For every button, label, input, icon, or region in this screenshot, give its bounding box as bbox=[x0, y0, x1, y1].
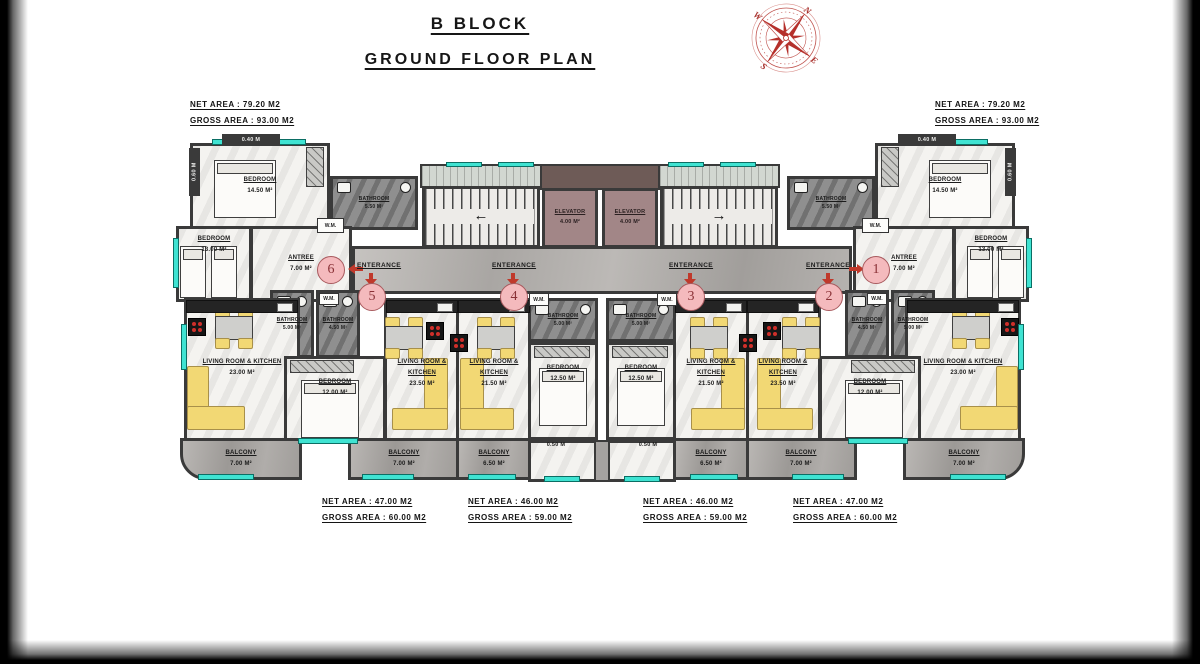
gross-area-label: GROSS AREA : 60.00 M2 bbox=[793, 510, 897, 526]
room-label: BALCONY7.00 M² bbox=[785, 448, 816, 470]
wardrobe bbox=[851, 360, 915, 373]
chair bbox=[952, 338, 967, 349]
room-label: LIVING ROOM & KITCHEN23.50 M² bbox=[387, 357, 457, 389]
wardrobe bbox=[612, 346, 668, 358]
room-label: BALCONY7.00 M² bbox=[225, 448, 256, 470]
sofa-section bbox=[187, 406, 245, 430]
window-glazing bbox=[690, 474, 738, 480]
dining-table bbox=[468, 316, 524, 360]
room-name: BATHROOM bbox=[898, 316, 929, 324]
compass-n: N bbox=[801, 4, 813, 17]
room-name: BEDROOM bbox=[975, 234, 1008, 245]
room-area: 12.00 M² bbox=[857, 390, 882, 396]
stair-direction-left: ← bbox=[428, 209, 534, 224]
room-area: 7.00 M² bbox=[893, 266, 915, 272]
room-area: 4.50 M² bbox=[329, 325, 347, 331]
washing-machine-label: W.M. bbox=[657, 293, 677, 306]
room-area: 14.50 M² bbox=[247, 188, 272, 194]
entrance-circle-2: 2 bbox=[815, 283, 843, 311]
washing-machine-label: W.M. bbox=[317, 218, 344, 233]
window-glazing bbox=[298, 438, 358, 444]
cooktop bbox=[763, 322, 781, 340]
room-area: 23.00 M² bbox=[229, 370, 254, 376]
room-name: BEDROOM bbox=[244, 175, 277, 186]
room-area: 5.00 M² bbox=[283, 325, 301, 331]
wardrobe bbox=[290, 360, 354, 373]
wall-dimension-label: 0.50 M bbox=[537, 442, 575, 448]
room-name: BATHROOM bbox=[548, 312, 579, 320]
room-area: 12.50 M² bbox=[550, 376, 575, 382]
room-name: BATHROOM bbox=[277, 316, 308, 324]
net-area-label: NET AREA : 46.00 M2 bbox=[468, 494, 572, 510]
room-name: BATHROOM bbox=[816, 195, 847, 203]
compass-rose-icon: N E S W bbox=[734, 0, 838, 82]
elevator-1: ELEVATOR4.00 M² bbox=[542, 188, 598, 248]
kitchen-counter bbox=[747, 300, 819, 313]
room-area: 5.00 M² bbox=[904, 325, 922, 331]
room-area: 14.50 M² bbox=[932, 188, 957, 194]
room-area: 5.00 M² bbox=[554, 321, 572, 327]
room-label: BATHROOM5.50 M² bbox=[816, 195, 847, 211]
entrance-circle-3: 3 bbox=[677, 283, 705, 311]
sofa-section bbox=[691, 408, 745, 430]
wall-dimension-label: 0.40 M bbox=[222, 134, 280, 145]
room-area: 6.50 M² bbox=[483, 461, 505, 467]
wall-dimension-label: 0.40 M bbox=[898, 134, 956, 145]
room-label: BALCONY7.00 M² bbox=[948, 448, 979, 470]
room-name: BEDROOM bbox=[929, 175, 962, 186]
wardrobe bbox=[306, 147, 324, 187]
washing-machine-label: W.M. bbox=[867, 293, 887, 305]
room-label: BEDROOM14.50 M² bbox=[929, 175, 962, 197]
washing-machine-label: W.M. bbox=[529, 293, 549, 306]
window-glazing bbox=[446, 162, 482, 167]
entrance-circle-5: 5 bbox=[358, 283, 386, 311]
sofa-section bbox=[960, 406, 1018, 430]
room-label: ANTREE7.00 M² bbox=[891, 253, 917, 275]
dining-table bbox=[376, 316, 432, 360]
window-glazing bbox=[198, 474, 254, 480]
window-glazing bbox=[720, 162, 756, 167]
corridor bbox=[352, 246, 852, 294]
gross-area-label: GROSS AREA : 59.00 M2 bbox=[468, 510, 572, 526]
arrow-stem bbox=[849, 267, 857, 271]
room-area: 13.00 M² bbox=[978, 247, 1003, 253]
room-area: 5.50 M² bbox=[822, 204, 840, 210]
room-label: BEDROOM12.50 M² bbox=[547, 363, 580, 385]
entrance-label: ENTERANCE bbox=[357, 262, 399, 269]
room-area: 23.50 M² bbox=[409, 381, 434, 387]
entrance-number: 1 bbox=[873, 262, 880, 278]
room-area: 7.00 M² bbox=[393, 461, 415, 467]
room-area: 4.50 M² bbox=[858, 325, 876, 331]
room-label: BATHROOM5.00 M² bbox=[898, 316, 929, 332]
chair bbox=[238, 338, 253, 349]
room-label: BATHROOM5.50 M² bbox=[359, 195, 390, 211]
window-glazing bbox=[544, 476, 580, 482]
room-area: 4.00 M² bbox=[560, 219, 580, 225]
room-name: LIVING ROOM & KITCHEN bbox=[459, 357, 529, 379]
room-area: 12.00 M² bbox=[322, 390, 347, 396]
room-name: BALCONY bbox=[478, 448, 509, 459]
room-area: 7.00 M² bbox=[230, 461, 252, 467]
room-name: BALCONY bbox=[785, 448, 816, 459]
window-glazing bbox=[498, 162, 534, 167]
room-name: ANTREE bbox=[891, 253, 917, 264]
summary-top-left: NET AREA : 79.20 M2 GROSS AREA : 93.00 M… bbox=[190, 97, 294, 129]
chair bbox=[975, 338, 990, 349]
room-name: BATHROOM bbox=[359, 195, 390, 203]
summary-unit4: NET AREA : 46.00 M2 GROSS AREA : 59.00 M… bbox=[468, 494, 572, 526]
window-glazing bbox=[181, 324, 187, 370]
room-name: LIVING ROOM & KITCHEN bbox=[748, 357, 818, 379]
room-area: 7.00 M² bbox=[290, 266, 312, 272]
sofa-section bbox=[392, 408, 448, 430]
room-area: 13.00 M² bbox=[201, 247, 226, 253]
room-label: BEDROOM12.00 M² bbox=[854, 377, 887, 399]
kitchen-counter bbox=[186, 300, 298, 313]
entrance-label: ENTERANCE bbox=[492, 262, 534, 269]
window-glazing bbox=[848, 438, 908, 444]
room-label: LIVING ROOM & KITCHEN23.50 M² bbox=[748, 357, 818, 389]
floor-title: GROUND FLOOR PLAN bbox=[355, 51, 605, 69]
window-glazing bbox=[362, 474, 414, 480]
room-label: BATHROOM5.00 M² bbox=[277, 316, 308, 332]
room-name: BALCONY bbox=[225, 448, 256, 459]
wall-dimension-label: 0.60 M bbox=[1005, 148, 1016, 196]
cooktop bbox=[188, 318, 206, 336]
room-name: ANTREE bbox=[288, 253, 314, 264]
room-name: LIVING ROOM & KITCHEN bbox=[387, 357, 457, 379]
stair-direction-right: → bbox=[666, 209, 772, 224]
room-label: ELEVATOR4.00 M² bbox=[555, 208, 586, 228]
cooktop bbox=[426, 322, 444, 340]
room-label: BATHROOM4.50 M² bbox=[852, 316, 883, 332]
room-area: 21.50 M² bbox=[481, 381, 506, 387]
room-name: ELEVATOR bbox=[615, 208, 646, 218]
room-label: LIVING ROOM & KITCHEN21.50 M² bbox=[459, 357, 529, 389]
entrance-label: ENTERANCE bbox=[806, 262, 848, 269]
frame-edge-right bbox=[1172, 0, 1200, 664]
elevator-shaft-wall bbox=[540, 164, 660, 190]
washing-machine-label: W.M. bbox=[862, 218, 889, 233]
window-glazing bbox=[173, 238, 179, 288]
summary-unit2: NET AREA : 47.00 M2 GROSS AREA : 60.00 M… bbox=[793, 494, 897, 526]
room-name: BEDROOM bbox=[625, 363, 658, 374]
room-label: BALCONY6.50 M² bbox=[695, 448, 726, 470]
room-area: 5.50 M² bbox=[365, 204, 383, 210]
entrance-circle-4: 4 bbox=[500, 283, 528, 311]
room-label: BALCONY6.50 M² bbox=[478, 448, 509, 470]
room-label: LIVING ROOM & KITCHEN23.00 M² bbox=[203, 357, 282, 379]
room-label: LIVING ROOM & KITCHEN23.00 M² bbox=[924, 357, 1003, 379]
room-label: ELEVATOR4.00 M² bbox=[615, 208, 646, 228]
room-area: 7.00 M² bbox=[790, 461, 812, 467]
room-label: BALCONY7.00 M² bbox=[388, 448, 419, 470]
net-area-label: NET AREA : 46.00 M2 bbox=[643, 494, 747, 510]
room-name: BEDROOM bbox=[854, 377, 887, 388]
table-top bbox=[477, 326, 515, 350]
room-area: 21.50 M² bbox=[698, 381, 723, 387]
gross-area-label: GROSS AREA : 60.00 M2 bbox=[322, 510, 426, 526]
cooktop bbox=[739, 334, 757, 352]
net-area-label: NET AREA : 47.00 M2 bbox=[322, 494, 426, 510]
window-glazing bbox=[624, 476, 660, 482]
frame-edge-left bbox=[0, 0, 28, 664]
room-label: BEDROOM13.00 M² bbox=[975, 234, 1008, 256]
room-label: BEDROOM12.50 M² bbox=[625, 363, 658, 385]
entrance-label: ENTERANCE bbox=[669, 262, 711, 269]
floor-plan-page: B BLOCK GROUND FLOOR PLAN N E S W NET AR… bbox=[0, 0, 1200, 664]
room-name: BATHROOM bbox=[852, 316, 883, 324]
chair bbox=[215, 338, 230, 349]
table-top bbox=[385, 326, 423, 350]
room-label: LIVING ROOM & KITCHEN21.50 M² bbox=[676, 357, 746, 389]
wall-dimension-label: 0.50 M bbox=[629, 442, 667, 448]
summary-unit3: NET AREA : 46.00 M2 GROSS AREA : 59.00 M… bbox=[643, 494, 747, 526]
window-glazing bbox=[668, 162, 704, 167]
window-glazing bbox=[792, 474, 844, 480]
wardrobe bbox=[534, 346, 590, 358]
summary-unit5: NET AREA : 47.00 M2 GROSS AREA : 60.00 M… bbox=[322, 494, 426, 526]
room-area: 4.00 M² bbox=[620, 219, 640, 225]
room-area: 5.00 M² bbox=[632, 321, 650, 327]
entrance-number: 2 bbox=[826, 289, 833, 305]
block-title: B BLOCK bbox=[380, 14, 580, 34]
room-name: BALCONY bbox=[695, 448, 726, 459]
table-top bbox=[215, 316, 253, 340]
room-label: BEDROOM13.00 M² bbox=[198, 234, 231, 256]
sofa-section bbox=[460, 408, 514, 430]
kitchen-counter bbox=[386, 300, 458, 313]
frame-edge-bottom bbox=[0, 640, 1200, 664]
table-top bbox=[690, 326, 728, 350]
entrance-circle-1: 1 bbox=[862, 256, 890, 284]
entrance-number: 6 bbox=[328, 262, 335, 278]
room-label: BATHROOM5.00 M² bbox=[548, 312, 579, 328]
dining-table bbox=[681, 316, 737, 360]
room-name: BALCONY bbox=[388, 448, 419, 459]
gross-area-label: GROSS AREA : 93.00 M2 bbox=[190, 113, 294, 129]
entrance-number: 5 bbox=[369, 289, 376, 305]
compass-w: W bbox=[751, 9, 764, 22]
room-label: BATHROOM4.50 M² bbox=[323, 316, 354, 332]
room-name: BATHROOM bbox=[323, 316, 354, 324]
room-name: BEDROOM bbox=[547, 363, 580, 374]
room-area: 7.00 M² bbox=[953, 461, 975, 467]
window-glazing bbox=[468, 474, 516, 480]
cooktop bbox=[1001, 318, 1019, 336]
dining-table bbox=[773, 316, 829, 360]
room-area: 23.00 M² bbox=[950, 370, 975, 376]
table-top bbox=[952, 316, 990, 340]
window-glazing bbox=[1018, 324, 1024, 370]
window-glazing bbox=[950, 474, 1006, 480]
entrance-number: 4 bbox=[511, 289, 518, 305]
table-top bbox=[782, 326, 820, 350]
arrow-head bbox=[343, 264, 355, 274]
room-name: BALCONY bbox=[948, 448, 979, 459]
room-label: BEDROOM14.50 M² bbox=[244, 175, 277, 197]
room-label: BEDROOM12.00 M² bbox=[319, 377, 352, 399]
staircase-right: → bbox=[660, 186, 778, 248]
center-shaft bbox=[594, 440, 610, 482]
washing-machine-label: W.M. bbox=[319, 293, 339, 305]
kitchen-counter bbox=[907, 300, 1019, 313]
wardrobe bbox=[881, 147, 899, 187]
room-name: BEDROOM bbox=[319, 377, 352, 388]
room-area: 12.50 M² bbox=[628, 376, 653, 382]
cooktop bbox=[450, 334, 468, 352]
window-glazing bbox=[1026, 238, 1032, 288]
room-name: LIVING ROOM & KITCHEN bbox=[924, 357, 1003, 368]
sofa-section bbox=[757, 408, 813, 430]
net-area-label: NET AREA : 47.00 M2 bbox=[793, 494, 897, 510]
entrance-number: 3 bbox=[688, 289, 695, 305]
elevator-2: ELEVATOR4.00 M² bbox=[602, 188, 658, 248]
room-area: 6.50 M² bbox=[700, 461, 722, 467]
staircase-left: ← bbox=[422, 186, 540, 248]
room-name: BATHROOM bbox=[626, 312, 657, 320]
summary-top-right: NET AREA : 79.20 M2 GROSS AREA : 93.00 M… bbox=[935, 97, 1039, 129]
room-label: BATHROOM5.00 M² bbox=[626, 312, 657, 328]
room-name: LIVING ROOM & KITCHEN bbox=[203, 357, 282, 368]
room-name: ELEVATOR bbox=[555, 208, 586, 218]
net-area-label: NET AREA : 79.20 M2 bbox=[190, 97, 294, 113]
gross-area-label: GROSS AREA : 93.00 M2 bbox=[935, 113, 1039, 129]
gross-area-label: GROSS AREA : 59.00 M2 bbox=[643, 510, 747, 526]
room-area: 23.50 M² bbox=[770, 381, 795, 387]
room-name: LIVING ROOM & KITCHEN bbox=[676, 357, 746, 379]
wall-dimension-label: 0.60 M bbox=[189, 148, 200, 196]
room-label: ANTREE7.00 M² bbox=[288, 253, 314, 275]
net-area-label: NET AREA : 79.20 M2 bbox=[935, 97, 1039, 113]
entrance-circle-6: 6 bbox=[317, 256, 345, 284]
room-name: BEDROOM bbox=[198, 234, 231, 245]
